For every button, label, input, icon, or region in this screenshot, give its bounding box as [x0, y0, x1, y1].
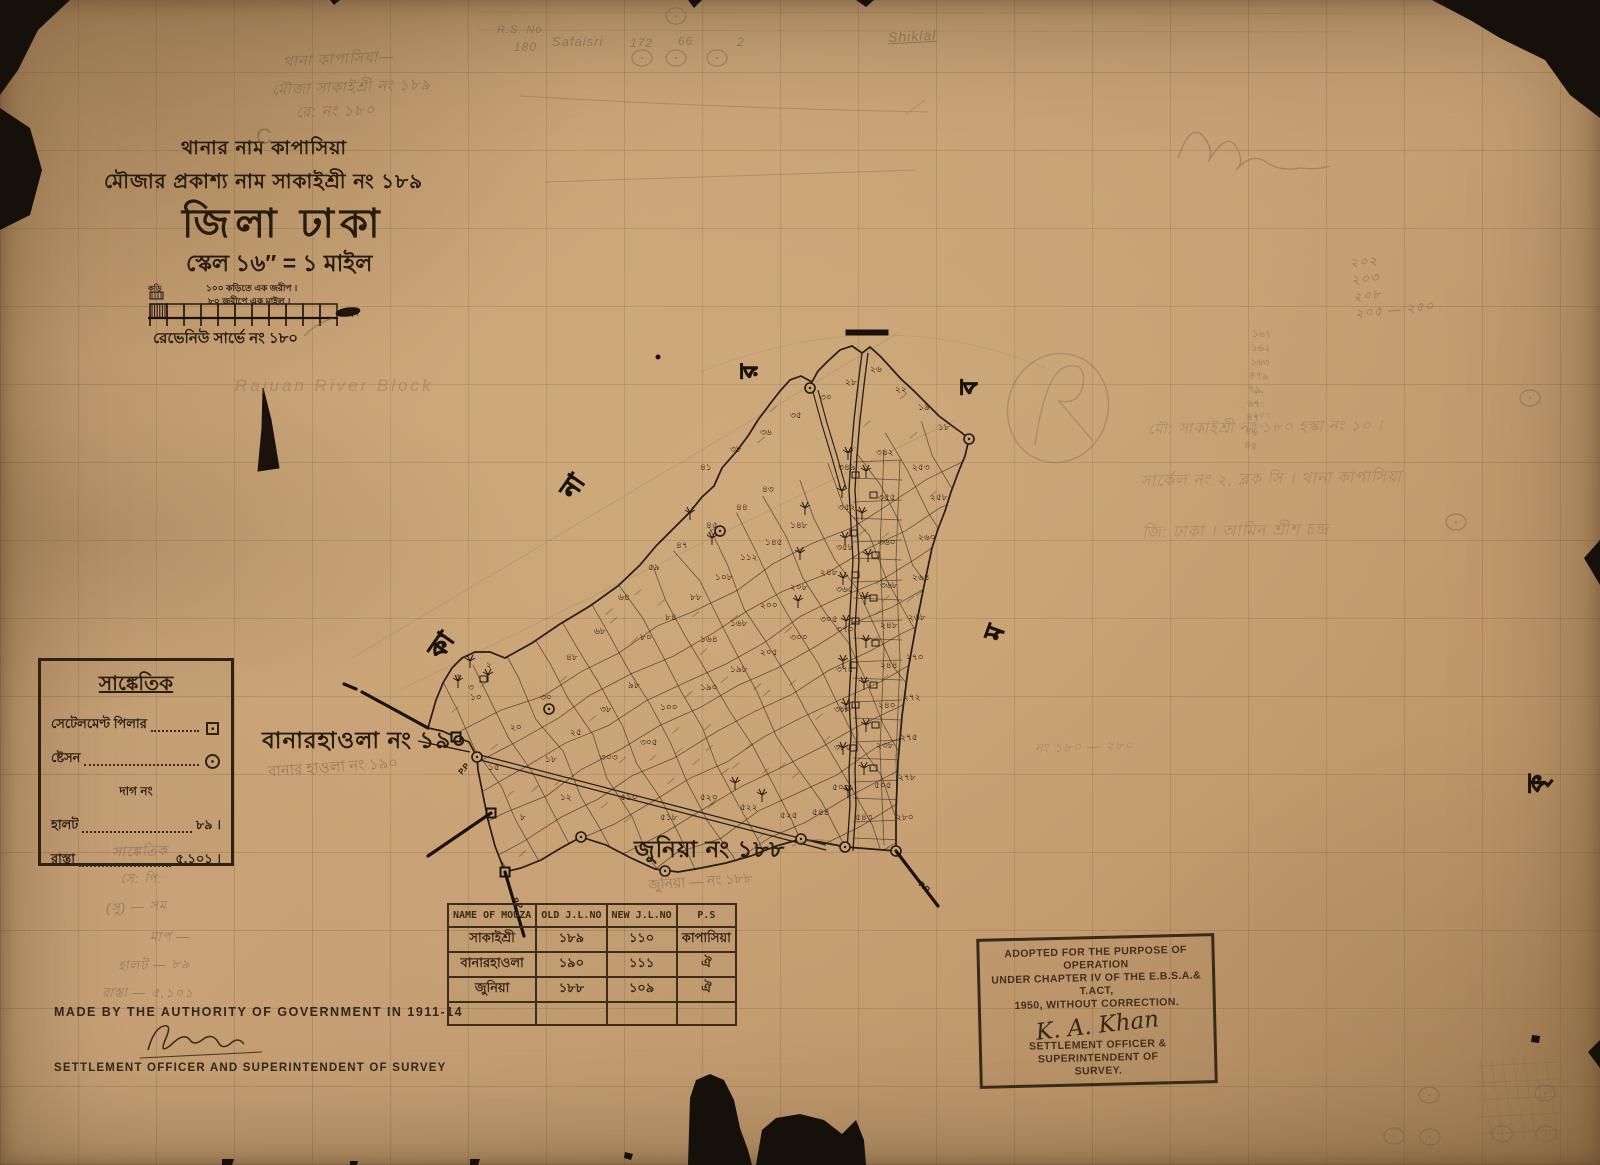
neighbor-mouza-letter: কৃ — [1522, 773, 1553, 793]
pencil-legend-echo-4: হালট — ৮৯ — [118, 955, 191, 979]
hut-icon — [870, 492, 877, 498]
traverse-line — [344, 684, 356, 689]
plot-number: ৫৯ — [648, 563, 660, 573]
table-cell: ১৮৮ — [536, 977, 606, 1002]
plot-number: ২৫৩ — [912, 463, 930, 473]
plot-number: ১০৮ — [715, 573, 733, 583]
plot-number: ৮৮ — [690, 593, 702, 603]
plot-number: ৩৭০ — [836, 625, 854, 635]
plot-number: ৯৮ — [628, 681, 640, 691]
neighbor-mouza-letter: ম — [978, 620, 1011, 645]
plot-number: ২৬৮ — [908, 613, 926, 623]
boundary-tick — [846, 330, 888, 335]
pencil-signature — [1178, 132, 1330, 170]
plot-number: ৩৮ — [730, 445, 742, 455]
plot-number: ৩৮৫ — [834, 743, 852, 753]
plot-number: ৩৫৮ — [836, 543, 854, 553]
plot-number: ৩৬ — [760, 428, 772, 438]
plot-number: ৬৪ — [618, 593, 630, 603]
table-cell: বানারহাওলা — [448, 952, 536, 977]
plot-number: ৬৮ — [594, 627, 606, 637]
pencil-right-line-1: মৌ: সাকাইশ্রী নং ১৮০ হস্কা নং ১০ । — [1148, 414, 1384, 443]
plot-number: ২২ — [895, 385, 907, 395]
plot-number: ২ — [486, 661, 492, 671]
plot-number: ১৪৮ — [790, 521, 808, 531]
legend-item-label: হালট — [51, 816, 78, 837]
traverse-pp-label: P.P — [457, 761, 472, 776]
plot-number: ১১২ — [740, 553, 758, 563]
plot-number: ২৬৪ — [912, 573, 930, 583]
plot-number: ৩০৩ — [600, 753, 618, 763]
tree-icon — [861, 465, 871, 478]
plot-number: ৩৫২ — [838, 503, 856, 513]
pencil-right-line-3: জি: ঢাকা । আমিন শ্রীশ চন্দ্র — [1142, 516, 1330, 546]
table-row: জুনিয়া১৮৮১০৯ঐ — [448, 977, 736, 1002]
tree-icon — [838, 572, 848, 585]
plot-number: ২৬০ — [918, 533, 936, 543]
plot-number: ১৬৮ — [730, 619, 748, 629]
plot-number: ২৭৮ — [898, 773, 916, 783]
plot-number: ১০ — [470, 693, 482, 703]
table-cell: ঐ — [677, 977, 736, 1002]
legend-item: হালট৮৯ । — [51, 816, 221, 837]
plot-number: ৩০ — [540, 693, 552, 703]
scale-statement: স্কেল ১৬″ = ১ মাইল — [186, 245, 372, 284]
plot-number: ২৫৮ — [930, 493, 948, 503]
pencil-check-circle — [993, 340, 1122, 476]
officer-line: SETTLEMENT OFFICER AND SUPERINTENDENT OF… — [54, 1062, 446, 1074]
plot-number: ১৮ — [938, 423, 950, 433]
plot-number: ৪৪ — [736, 503, 748, 513]
plot-number: ২০ — [510, 723, 522, 733]
tree-icon — [793, 595, 803, 608]
table-cell: কাপাসিয়া — [677, 927, 736, 952]
neighbor-mouza-letter: র — [734, 363, 763, 379]
table-cell: ১০৯ — [607, 977, 677, 1002]
pencil-right-numbers: ২০২২০৩ ২০৮২০৫ — ২৫০ — [1349, 246, 1436, 322]
pencil-legend-echo-2: (সু) — সম — [105, 896, 167, 920]
plot-number: ১৬৪ — [700, 635, 718, 645]
plot-number: ৫১৮ — [660, 813, 678, 823]
plot-number: ১৪৫ — [765, 538, 783, 548]
neighbor-mouza-letter: না — [554, 467, 592, 504]
legend-item: সেটেলমেণ্ট পিলার — [51, 715, 221, 736]
legend-item-value: ৫,১০১ । — [175, 850, 221, 871]
plot-number: ৩৬৮ — [880, 581, 898, 591]
pencil-shiklal: Shiklal — [888, 27, 937, 46]
plot-number: ৫০৫ — [874, 781, 892, 791]
legend-item-value: ৮৯ । — [196, 816, 221, 837]
pencil-legend-echo-3: মাপ — — [150, 928, 190, 949]
plot-number: ২৮ — [845, 378, 857, 388]
legend-item-label: ষ্টেসন — [51, 749, 80, 770]
plot-number: ৩৫ — [790, 411, 802, 421]
table-cell: সাকাইশ্রী — [448, 927, 536, 952]
plot-number: ৫২২ — [740, 803, 758, 813]
plot-number: ২০০ — [760, 601, 778, 611]
scalebar-right-label: মাইল — [342, 308, 359, 321]
plot-number: ৩৮০ — [834, 705, 852, 715]
table-cell: ঐ — [677, 952, 736, 977]
plot-number: ৪৩ — [762, 485, 774, 495]
pencil-rs-no: R.S. No. — [497, 24, 547, 36]
mouza-table-header: NEW J.L.NO — [607, 904, 677, 927]
scalebar-left-label: কড়ি — [148, 283, 162, 296]
plot-number: ২০৮ — [790, 583, 808, 593]
plot-number: ৮৪ — [665, 613, 677, 623]
table-cell — [536, 1002, 606, 1025]
plot-number: ৩০ — [820, 393, 832, 403]
pencil-mid-note: নং ১৮০ — ২৮০ — [1035, 736, 1135, 760]
plot-number: ৩৭৫ — [836, 665, 854, 675]
plot-number: ২৪৪ — [880, 661, 898, 671]
plot-number: ২৮০ — [896, 813, 914, 823]
signature-underline — [140, 1052, 262, 1058]
plot-number: ৮ — [520, 813, 526, 823]
plot-number: ২৫ — [570, 728, 582, 738]
plot-number: ৩ — [468, 683, 474, 693]
map-sheet: P.PP.PP.P ৬৪৬৮৪৮৫৯৪৭৪৫৪৪৪৩৪১৩৮৩৬৩৫৩০২৮২৬… — [0, 0, 1600, 1165]
pencil-r-mark — [1035, 366, 1093, 445]
revenue-survey-note: রেভেনিউ সার্ভে নং ১৮০ — [153, 327, 298, 352]
legend-item-dagno: দাগ নং — [51, 783, 221, 803]
table-cell: ১৮৯ — [536, 927, 606, 952]
plot-number: ৪৫ — [706, 521, 718, 531]
plot-number: ২৪৮ — [880, 621, 898, 631]
adoption-stamp: ADOPTED FOR THE PURPOSE OF OPERATIONUNDE… — [976, 933, 1218, 1089]
plot-number: ৩০৫ — [640, 738, 658, 748]
mouza-table-header: P.S — [677, 904, 736, 927]
table-cell: ১৯০ — [536, 952, 606, 977]
tree-icon — [795, 547, 805, 560]
hut-icon — [870, 595, 877, 601]
plot-number: ২৩৮ — [876, 741, 894, 751]
plot-number: ৩৫৫ — [878, 493, 896, 503]
plot-number: ৩০০ — [790, 633, 808, 643]
table-cell: ১১০ — [607, 927, 677, 952]
station-icon — [203, 753, 221, 770]
legend-item-label: সেটেলমেণ্ট পিলার — [51, 715, 147, 736]
plot-number: ৫২৫ — [780, 811, 798, 821]
plot-number: ৩৬০ — [878, 538, 896, 548]
pencil-2: 2 — [737, 35, 745, 49]
plot-number: ২৪৮ — [820, 568, 838, 578]
settlement-pillar-icon — [203, 721, 221, 736]
plot-number: ৩৮ — [600, 705, 612, 715]
mouza-table-header: NAME OF MOUZA — [448, 904, 536, 927]
plot-number: ২৬ — [870, 365, 882, 375]
neighbor-mouza-letter: ব — [954, 379, 983, 395]
plot-number: ১৮ — [545, 755, 557, 765]
plot-number: ২০৫ — [760, 648, 778, 658]
plot-number: ৩৪৯ — [838, 463, 856, 473]
traverse-line — [428, 813, 491, 856]
officer-signature — [148, 1026, 244, 1050]
plot-number: ১৯৮ — [730, 665, 748, 675]
plot-number: ১৯০ — [700, 683, 718, 693]
plot-number: ৫ — [455, 673, 461, 683]
pencil-re-no-note: রে: নং ১৮০ — [296, 99, 376, 127]
pencil-legend-echo-0: সাঙ্কেতিক — [112, 839, 169, 865]
pencil-legend-echo-1: সে: পি: — [120, 870, 162, 891]
plot-number: ২৭৫ — [900, 733, 918, 743]
pencil-right-line-2: সার্কেল নং ২, ব্লক সি । থানা কাপাসিয়া — [1140, 464, 1403, 496]
pencil-66: 66 — [678, 34, 693, 48]
plot-number: ৫১০ — [620, 793, 638, 803]
legend-item-label: রাস্তা — [51, 850, 75, 871]
pencil-c-mark: C — [256, 124, 272, 150]
table-row: বানারহাওলা১৯০১১১ঐ — [448, 952, 736, 977]
junia-label: জুনিয়া নং ১৮৮ — [634, 831, 785, 870]
plot-number: ২৭০ — [906, 653, 924, 663]
tree-icon — [859, 762, 869, 775]
plot-number: ২৭২ — [903, 693, 921, 703]
plot-number: ৩৪২ — [876, 448, 894, 458]
plot-number: ১০০ — [660, 703, 678, 713]
legend-box: সাঙ্কেতিক সেটেলমেণ্ট পিলারষ্টেসনদাগ নংহা… — [38, 658, 234, 866]
pencil-river-note: Rajuan River Block — [235, 376, 434, 396]
table-cell: ১১১ — [607, 952, 677, 977]
pencil-legend-echo-5: রাস্তা — ৫,১০১ — [102, 984, 194, 1005]
pencil-172: 172 — [630, 36, 653, 50]
pencil-safaisri: Safaisri — [552, 34, 603, 49]
table-row: সাকাইশ্রী১৮৯১১০কাপাসিয়া — [448, 927, 736, 952]
plot-number: ১৫ — [488, 763, 500, 773]
plot-number: ২৪০ — [878, 701, 896, 711]
traverse-line — [896, 851, 938, 906]
mouza-table: NAME OF MOUZAOLD J.L.NONEW J.L.NOP.S সাক… — [447, 903, 737, 1026]
tree-icon — [757, 789, 767, 802]
table-cell — [607, 1002, 677, 1025]
table-row — [448, 1002, 736, 1025]
tree-icon — [861, 635, 871, 648]
table-cell: জুনিয়া — [448, 977, 536, 1002]
plot-number: ৪১ — [700, 463, 712, 473]
made-by-line: MADE BY THE AUTHORITY OF GOVERNMENT IN 1… — [54, 1005, 463, 1019]
mouza-table-header: OLD J.L.NO — [536, 904, 606, 927]
plot-number: ৪৮ — [566, 653, 578, 663]
pencil-180: 180 — [514, 40, 537, 54]
scalebar-caption-2: ৮০ জরীপে এক মাইল । — [208, 294, 290, 309]
legend-title: সাঙ্কেতিক — [51, 669, 221, 702]
neighbor-mouza-letter: কা — [422, 625, 462, 664]
plot-number: ৮০ — [640, 633, 652, 643]
plot-number: ১২ — [560, 793, 572, 803]
hut-icon — [872, 722, 879, 728]
ink-blotch — [258, 388, 279, 471]
plot-number: ৫৪৩ — [855, 813, 873, 823]
plot-number: ৩৬৫ — [836, 585, 854, 595]
plot-number: ৫২০ — [700, 793, 718, 803]
legend-item: ষ্টেসন — [51, 749, 221, 770]
plot-number: ১৯ — [918, 403, 930, 413]
plot-number: ৫০০ — [832, 783, 850, 793]
plot-number: ৪৭ — [676, 541, 688, 551]
pencil-check-mark — [304, 318, 334, 336]
table-cell — [677, 1002, 736, 1025]
plot-number: ৫৪৪ — [812, 808, 830, 818]
plot-number: ৩০৫ — [820, 615, 838, 625]
